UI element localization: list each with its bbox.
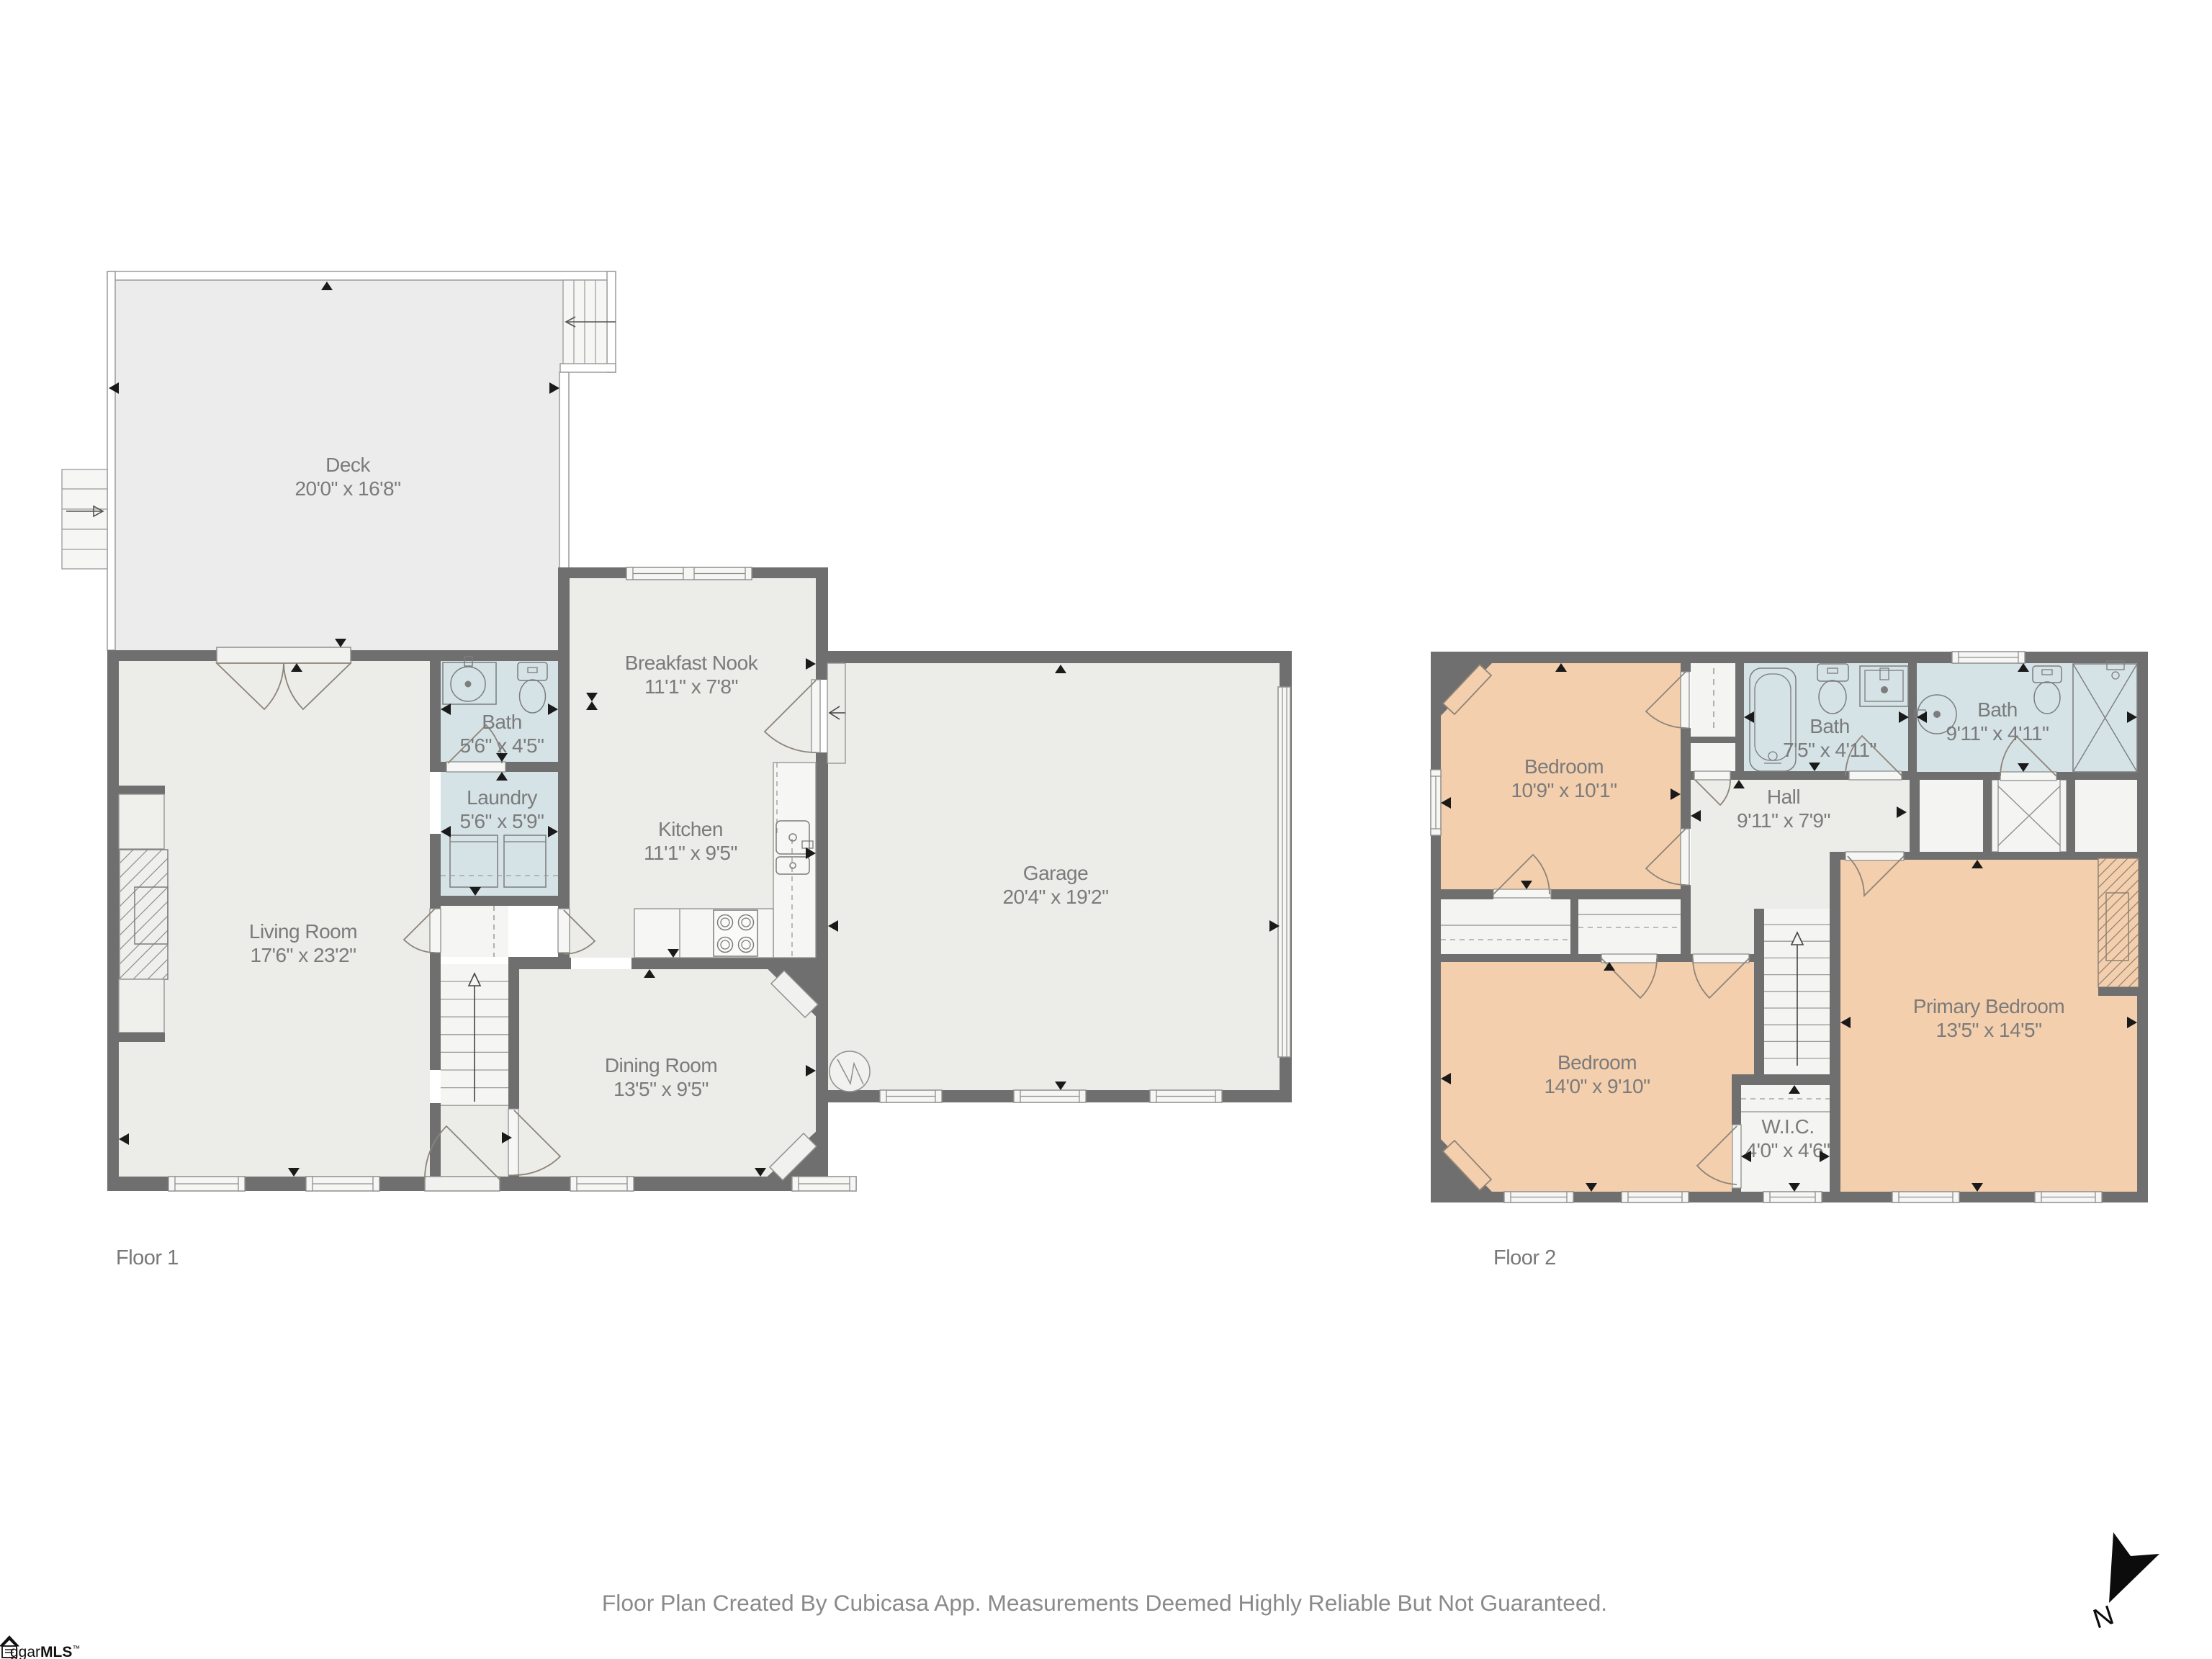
svg-text:Hall: Hall [1767,786,1800,808]
svg-text:Bedroom: Bedroom [1557,1051,1637,1074]
svg-text:Floor Plan Created By Cubicasa: Floor Plan Created By Cubicasa App. Meas… [602,1590,1607,1616]
svg-text:ggarMLS™: ggarMLS™ [10,1644,80,1659]
svg-text:Floor 1: Floor 1 [116,1246,179,1269]
svg-text:Floor 2: Floor 2 [1493,1246,1556,1269]
svg-text:Bedroom: Bedroom [1524,755,1604,778]
svg-text:13'5" x 9'5": 13'5" x 9'5" [613,1078,709,1100]
svg-text:13'5" x 14'5": 13'5" x 14'5" [1935,1019,2041,1041]
svg-text:10'9" x 10'1": 10'9" x 10'1" [1511,779,1617,801]
svg-text:Deck: Deck [325,454,371,476]
svg-text:Garage: Garage [1023,862,1088,884]
svg-text:Primary Bedroom: Primary Bedroom [1913,995,2064,1017]
svg-text:Living Room: Living Room [249,920,357,943]
svg-text:Breakfast Nook: Breakfast Nook [625,652,759,674]
svg-text:14'0" x 9'10": 14'0" x 9'10" [1544,1075,1650,1097]
svg-text:Bath: Bath [1977,698,2018,721]
svg-text:20'4" x 19'2": 20'4" x 19'2" [1002,886,1108,908]
svg-text:Kitchen: Kitchen [658,818,723,840]
svg-text:11'1" x 9'5": 11'1" x 9'5" [644,842,737,864]
svg-text:17'6" x 23'2": 17'6" x 23'2" [250,944,356,966]
svg-text:9'11" x 4'11": 9'11" x 4'11" [1946,722,2049,745]
svg-text:Laundry: Laundry [467,786,537,809]
svg-text:Bath: Bath [1809,715,1850,737]
svg-text:9'11" x 7'9": 9'11" x 7'9" [1737,809,1830,832]
svg-text:W.I.C.: W.I.C. [1761,1115,1814,1138]
svg-text:4'0" x 4'6": 4'0" x 4'6" [1746,1139,1830,1161]
svg-text:20'0" x 16'8": 20'0" x 16'8" [295,477,400,500]
svg-text:11'1" x 7'8": 11'1" x 7'8" [644,675,738,698]
svg-text:Dining Room: Dining Room [605,1054,717,1076]
svg-text:5'6" x 5'9": 5'6" x 5'9" [460,810,544,832]
svg-text:7'5" x 4'11": 7'5" x 4'11" [1783,739,1876,761]
svg-text:Bath: Bath [482,711,522,733]
